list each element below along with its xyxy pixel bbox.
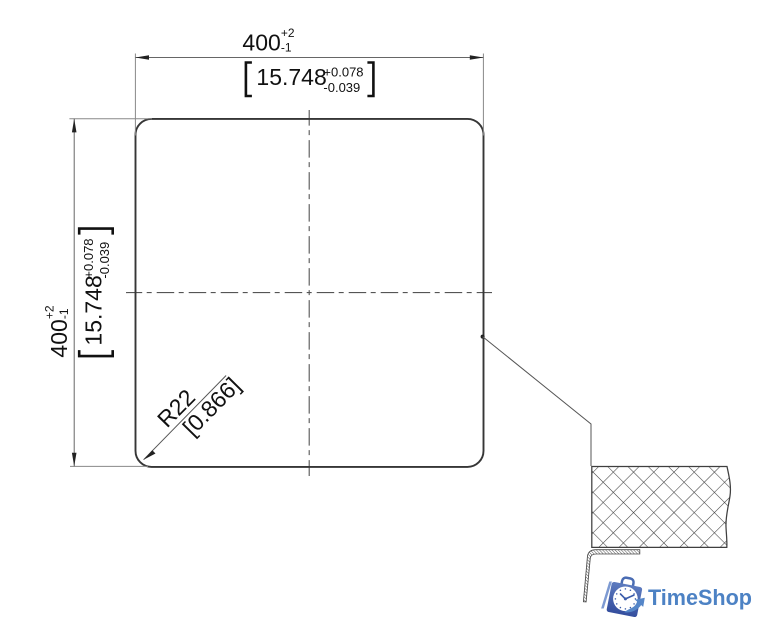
svg-text:+2: +2	[281, 26, 295, 40]
svg-text:+2: +2	[43, 305, 57, 319]
svg-text:15.748: 15.748	[81, 275, 107, 345]
svg-text:TimeShop: TimeShop	[648, 585, 752, 610]
svg-text:-1: -1	[281, 41, 292, 55]
svg-text:400: 400	[242, 30, 280, 56]
svg-text:+0.078: +0.078	[81, 238, 96, 278]
svg-text:400: 400	[46, 319, 72, 357]
svg-text:-0.039: -0.039	[323, 80, 360, 95]
svg-text:-0.039: -0.039	[97, 242, 112, 279]
svg-text:15.748: 15.748	[256, 64, 326, 90]
svg-text:+0.078: +0.078	[323, 65, 363, 80]
svg-text:-1: -1	[57, 308, 71, 319]
